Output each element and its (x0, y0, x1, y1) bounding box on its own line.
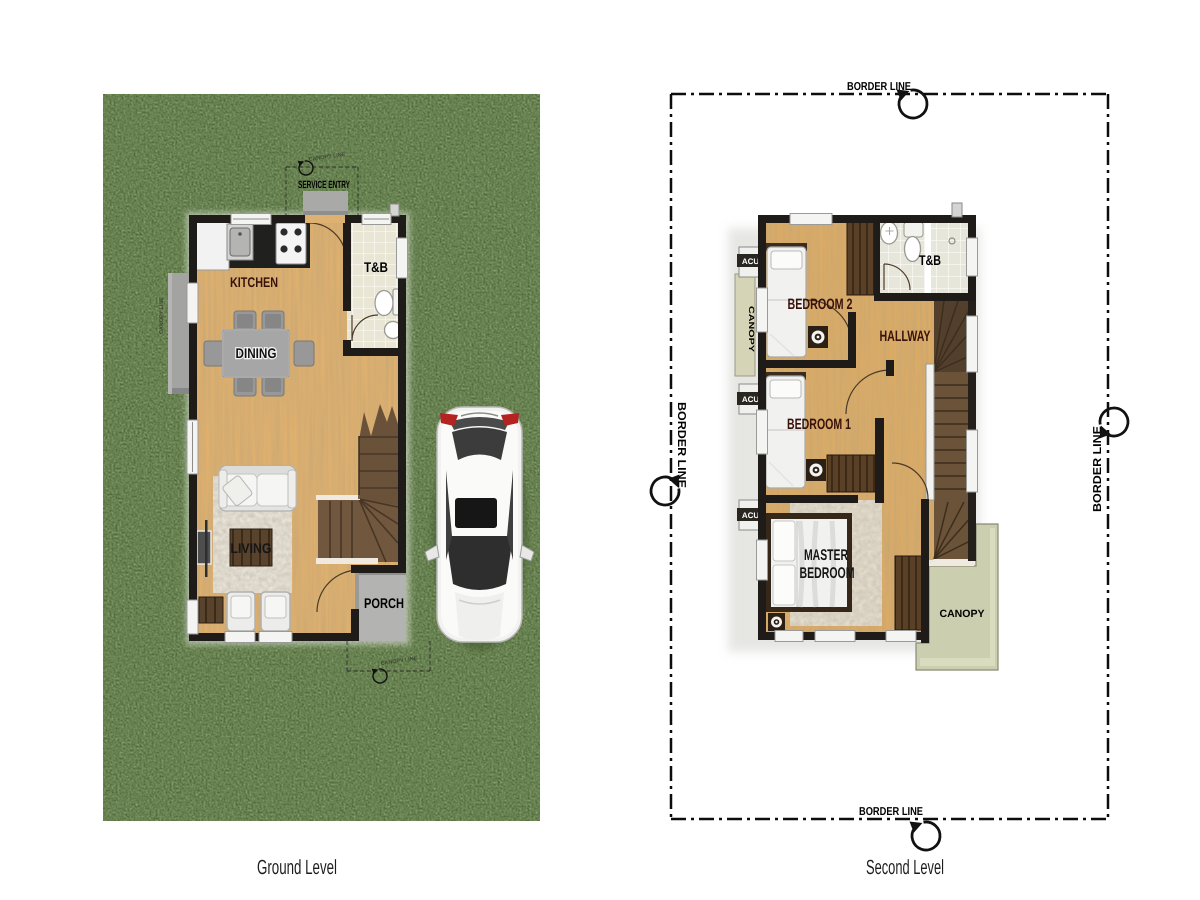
svg-text:ACU: ACU (742, 257, 760, 266)
svg-text:ACU: ACU (742, 511, 760, 520)
svg-text:Second Level: Second Level (866, 856, 944, 879)
svg-text:BEDROOM 1: BEDROOM 1 (787, 416, 851, 433)
svg-text:CANOPY LINE: CANOPY LINE (159, 297, 165, 334)
svg-text:CANOPY: CANOPY (747, 306, 756, 352)
svg-text:SERVICE ENTRY: SERVICE ENTRY (298, 179, 350, 191)
svg-text:CANOPY: CANOPY (940, 608, 985, 620)
svg-text:BEDROOM 2: BEDROOM 2 (788, 296, 853, 313)
svg-text:T&B: T&B (919, 252, 941, 268)
svg-text:HALLWAY: HALLWAY (880, 328, 931, 345)
svg-text:BORDER LINE: BORDER LINE (859, 806, 923, 818)
svg-text:BORDER LINE: BORDER LINE (675, 402, 687, 488)
svg-text:Ground Level: Ground Level (257, 856, 337, 879)
svg-text:BORDER LINE: BORDER LINE (1092, 426, 1104, 512)
svg-text:T&B: T&B (364, 259, 388, 275)
svg-text:DINING: DINING (236, 345, 277, 361)
svg-text:BEDROOM: BEDROOM (800, 565, 855, 582)
svg-text:ACU: ACU (742, 395, 760, 404)
svg-text:MASTER: MASTER (804, 547, 848, 564)
svg-text:PORCH: PORCH (364, 595, 404, 611)
svg-text:KITCHEN: KITCHEN (230, 274, 278, 290)
svg-text:LIVING: LIVING (231, 540, 272, 556)
